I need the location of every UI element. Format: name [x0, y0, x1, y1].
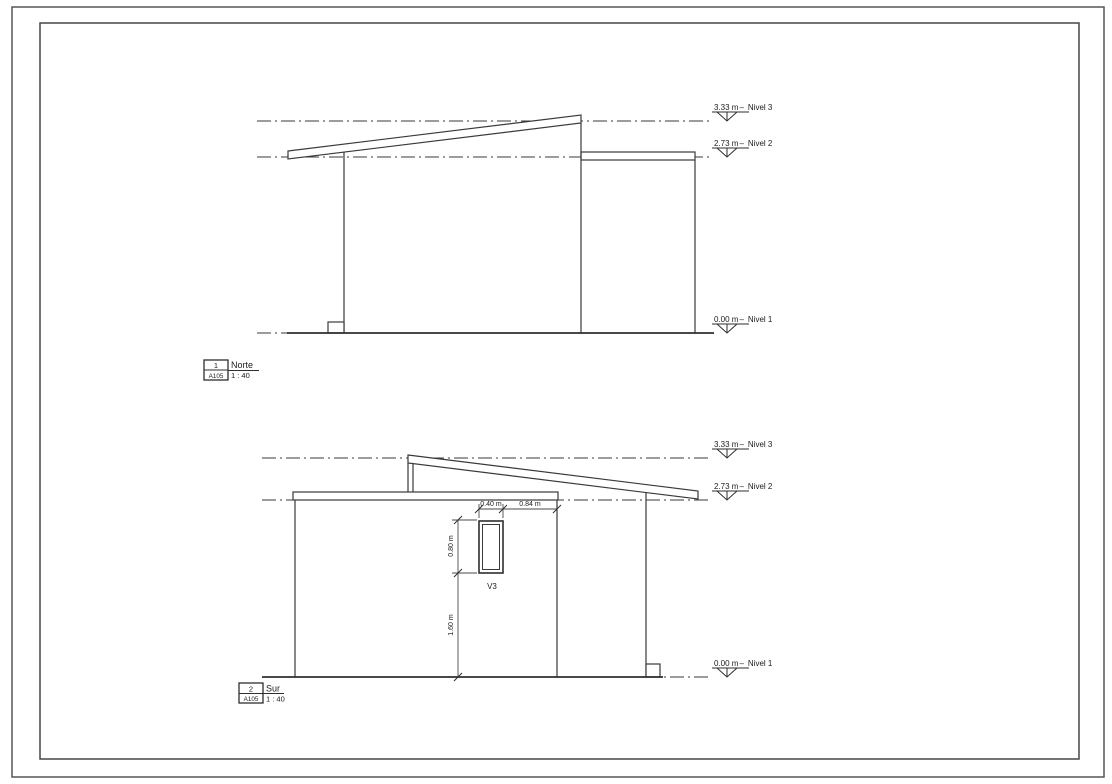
level-marker-nivel3: 3.33 m–Nivel 3 [712, 103, 773, 121]
view-scale: 1 : 40 [231, 371, 250, 380]
window-tag: V3 [487, 582, 497, 591]
level-label: 0.00 m–Nivel 1 [714, 659, 773, 668]
dim-window-height: 0.80 m [448, 535, 455, 557]
view-number: 2 [249, 685, 253, 694]
view-name: Sur [266, 684, 280, 694]
parapet-slab [293, 492, 558, 500]
level-label: 3.33 m–Nivel 3 [714, 103, 773, 112]
drawing-sheet: 3.33 m–Nivel 3 2.73 m–Nivel 2 0.00 m–Niv… [0, 0, 1112, 784]
level-label: 3.33 m–Nivel 3 [714, 440, 773, 449]
flat-roof-slab [581, 152, 695, 160]
view-sheet-ref: A105 [209, 373, 224, 380]
sheet-inner-border [40, 23, 1079, 759]
window-v3: V3 [479, 521, 503, 591]
level-label: 2.73 m–Nivel 2 [714, 139, 773, 148]
level-label: 2.73 m–Nivel 2 [714, 482, 773, 491]
level-marker-nivel1: 0.00 m–Nivel 1 [712, 315, 773, 333]
view-number: 1 [214, 361, 218, 370]
elevation-view-norte: 3.33 m–Nivel 3 2.73 m–Nivel 2 0.00 m–Niv… [204, 103, 773, 380]
view-sheet-ref: A105 [244, 696, 259, 703]
view-title-norte: 1 A105 Norte 1 : 40 [204, 360, 259, 380]
level-label: 0.00 m–Nivel 1 [714, 315, 773, 324]
elevation-view-sur: V3 0.40 m 0.84 m 0.80 m 1.60 m [239, 440, 773, 704]
view-scale: 1 : 40 [266, 695, 285, 704]
dim-window-width: 0.40 m [480, 501, 502, 508]
dimension-horizontal: 0.40 m 0.84 m [475, 501, 561, 518]
sloped-roof-slab [288, 115, 581, 159]
level-marker-nivel2: 2.73 m–Nivel 2 [712, 482, 773, 500]
foundation-step [328, 322, 344, 333]
sheet-canvas: 3.33 m–Nivel 3 2.73 m–Nivel 2 0.00 m–Niv… [0, 0, 1112, 784]
foundation-step [646, 664, 660, 677]
view-name: Norte [231, 360, 253, 370]
level-marker-nivel2: 2.73 m–Nivel 2 [712, 139, 773, 157]
view-title-sur: 2 A105 Sur 1 : 40 [239, 683, 285, 704]
level-marker-nivel1: 0.00 m–Nivel 1 [712, 659, 773, 677]
dim-sill-height: 1.60 m [448, 614, 455, 636]
dim-window-offset: 0.84 m [519, 501, 541, 508]
dimension-vertical: 0.80 m 1.60 m [448, 516, 477, 681]
level-marker-nivel3: 3.33 m–Nivel 3 [712, 440, 773, 458]
